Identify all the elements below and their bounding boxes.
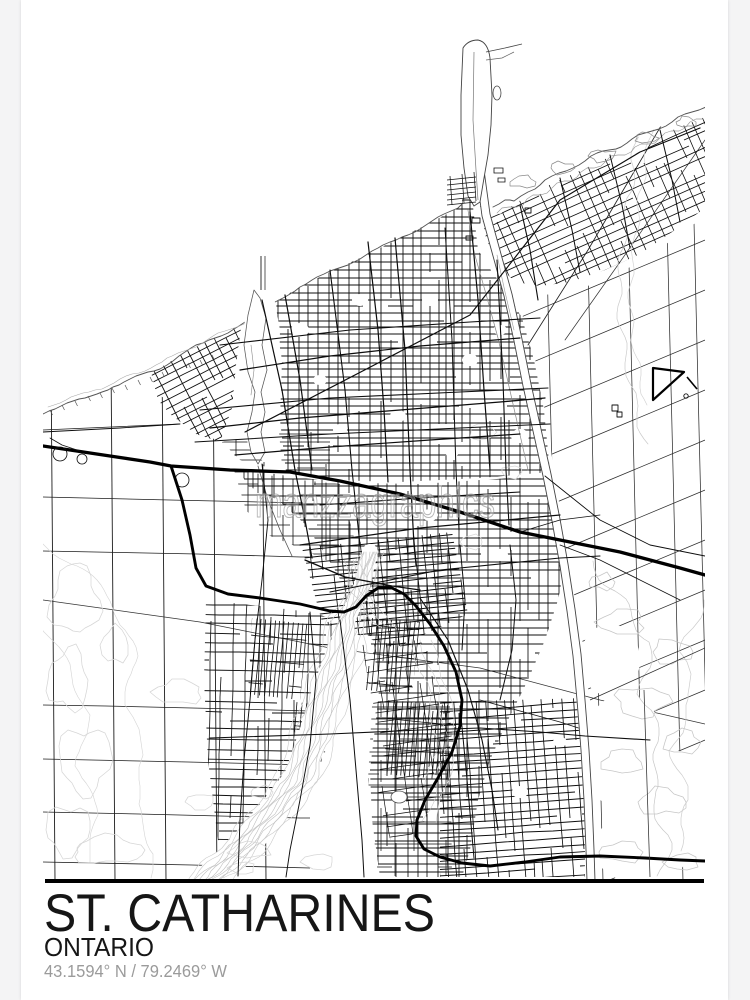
svg-text:manzzagraphics: manzzagraphics [255, 479, 495, 527]
svg-text:43.1594° N / 79.2469° W: 43.1594° N / 79.2469° W [44, 961, 227, 981]
svg-text:ONTARIO: ONTARIO [44, 932, 154, 962]
